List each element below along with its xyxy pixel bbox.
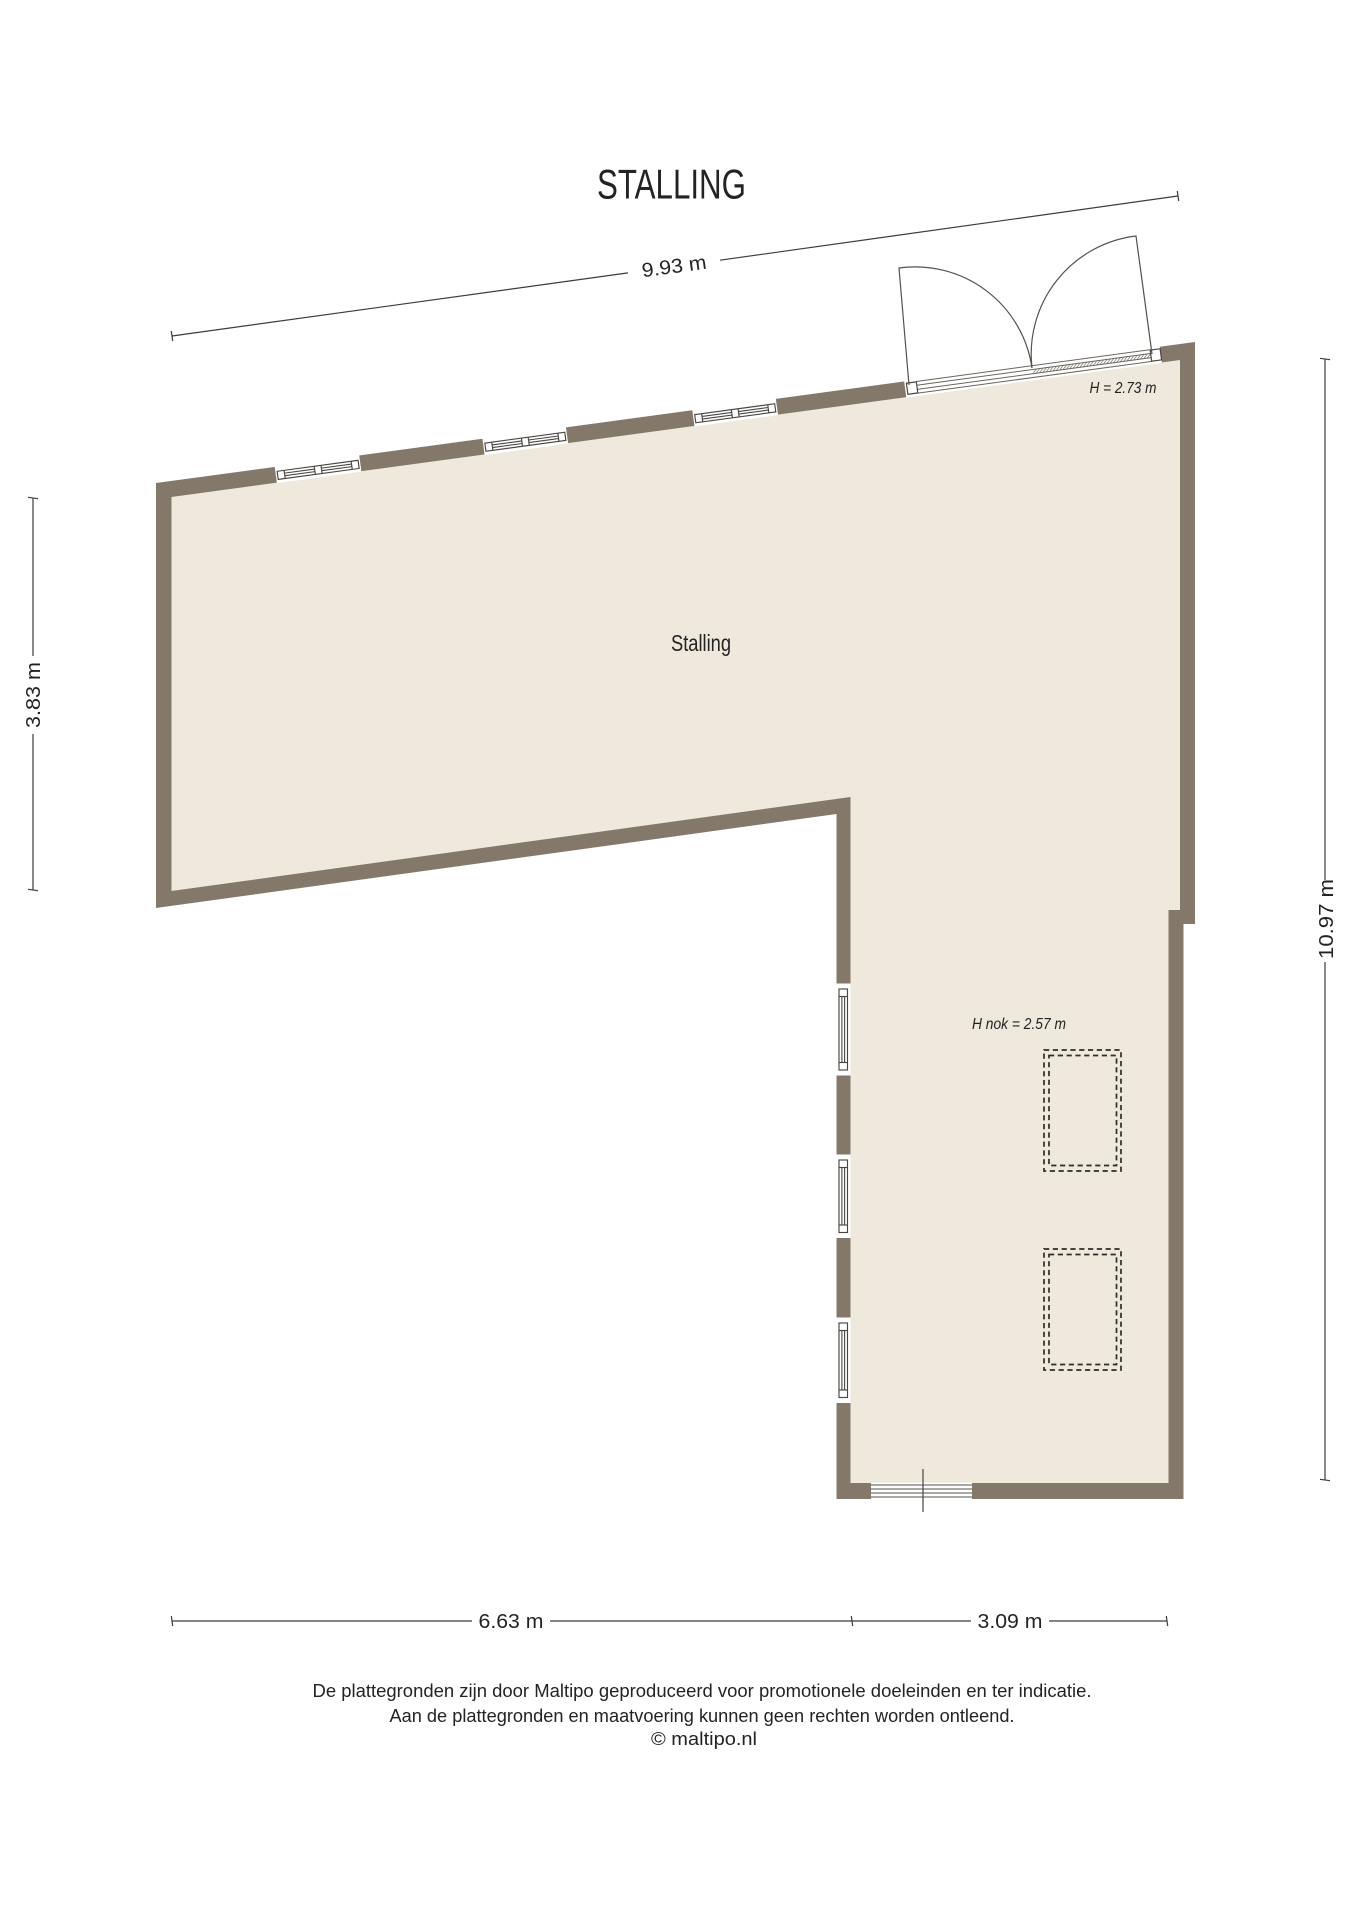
svg-text:© maltipo.nl: © maltipo.nl — [651, 1729, 757, 1749]
svg-text:H nok = 2.57 m: H nok = 2.57 m — [972, 1016, 1066, 1033]
svg-text:Stalling: Stalling — [671, 630, 731, 656]
svg-text:H = 2.73 m: H = 2.73 m — [1090, 380, 1157, 397]
svg-text:10.97 m: 10.97 m — [1316, 879, 1338, 959]
svg-text:3.83 m: 3.83 m — [23, 662, 45, 728]
svg-text:6.63 m: 6.63 m — [479, 1611, 544, 1633]
svg-text:STALLING: STALLING — [597, 161, 746, 208]
svg-text:3.09 m: 3.09 m — [978, 1611, 1043, 1633]
svg-text:De plattegronden zijn door Mal: De plattegronden zijn door Maltipo gepro… — [313, 1681, 1092, 1701]
svg-text:Aan de plattegronden en maatvo: Aan de plattegronden en maatvoering kunn… — [390, 1706, 1015, 1726]
